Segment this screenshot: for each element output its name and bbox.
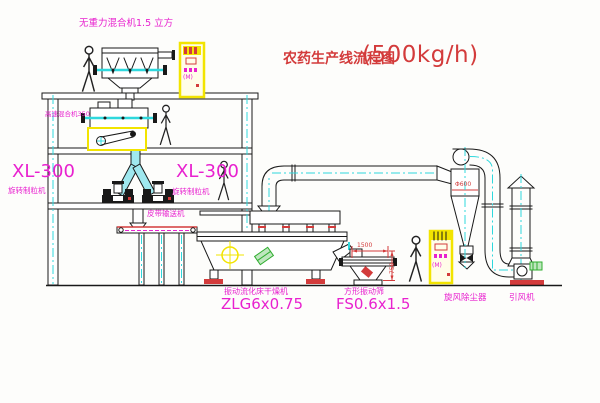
label-fan: 引风机 xyxy=(509,294,535,303)
fluid-bed-dryer xyxy=(197,211,353,284)
cabinet-mark-top: (M) xyxy=(183,75,193,81)
label-sieve-model: FS0.6x1.5 xyxy=(336,297,410,312)
label-cyclone: 旋风除尘器 xyxy=(444,294,487,303)
cabinet-mark-right: (M) xyxy=(432,263,442,269)
label-granulator-right-model: XL-300 xyxy=(176,163,239,181)
label-belt-conveyor: 皮带输送机 xyxy=(147,210,185,218)
title-capacity: (500kg/h) xyxy=(362,44,479,67)
belt-conveyor xyxy=(117,209,197,285)
induced-draft-fan xyxy=(510,262,544,285)
high-speed-mixer xyxy=(81,99,157,150)
exhaust-duct xyxy=(258,165,453,216)
person-floor2 xyxy=(160,105,171,145)
control-cabinet-right xyxy=(430,231,452,283)
dim-sieve-height: 750 xyxy=(390,263,396,274)
control-cabinet-top xyxy=(180,43,204,97)
person-ground xyxy=(409,236,421,281)
label-granulator-left-model: XL-300 xyxy=(12,163,75,181)
flow-diagram-canvas: 无重力混合机1.5 立方 农药生产线流程图 (500kg/h) 高速混合机350… xyxy=(0,0,600,403)
label-dryer-model: ZLG6x0.75 xyxy=(221,297,303,312)
label-granulator-left-name: 旋转制粒机 xyxy=(8,187,46,195)
label-high-speed-mixer: 高速混合机350 xyxy=(45,111,90,118)
label-granulator-right-name: 旋转制粒机 xyxy=(172,188,210,196)
gravity-free-mixer xyxy=(93,48,175,100)
label-gravity-mixer: 无重力混合机1.5 立方 xyxy=(79,19,173,29)
person-roof xyxy=(82,46,94,91)
dim-cyclone-diameter: Φ600 xyxy=(455,182,471,188)
dim-sieve-length: 1500 xyxy=(357,243,372,249)
